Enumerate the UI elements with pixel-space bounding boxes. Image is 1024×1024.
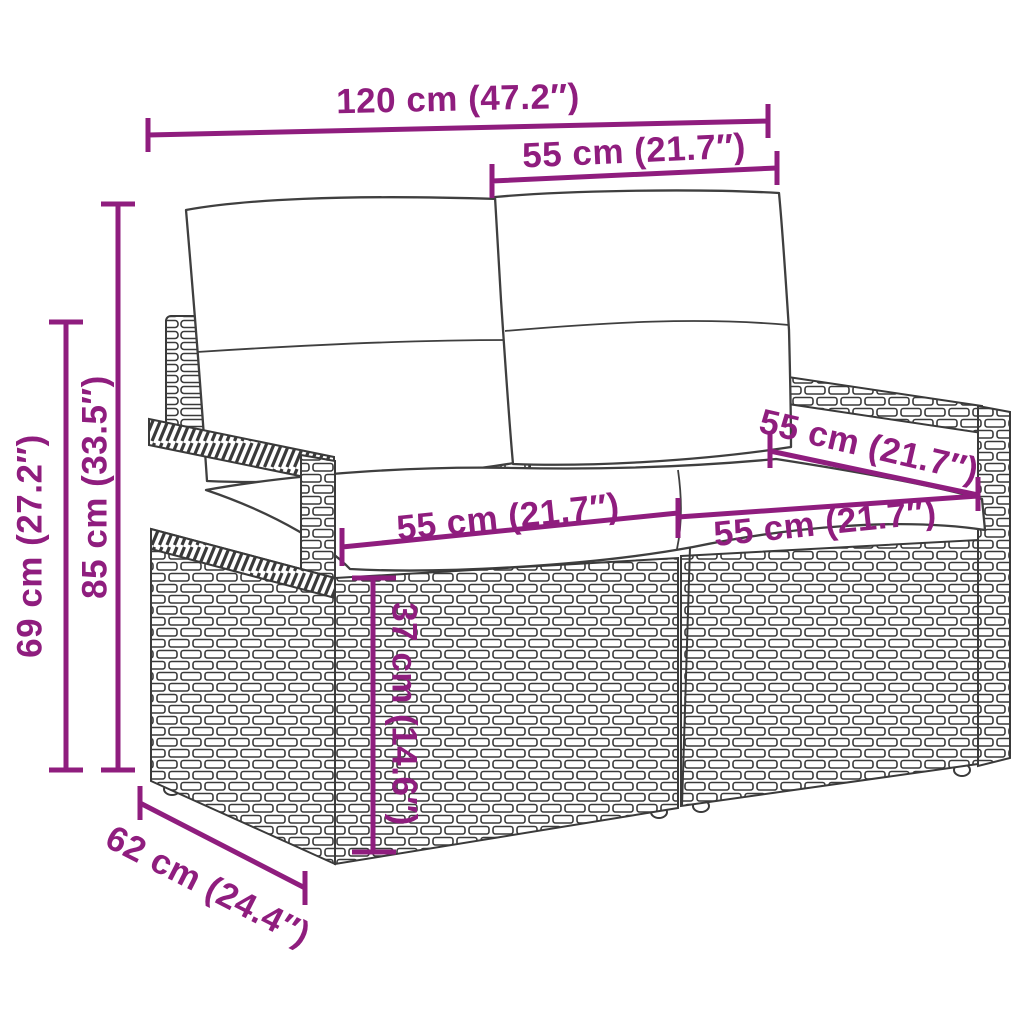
base-front-right-module: [681, 540, 978, 806]
dimension-diagram: 120 cm (47.2″) 55 cm (21.7″) 85 cm (33.5…: [0, 0, 1024, 1024]
back-cushions: [186, 190, 791, 482]
dim-upper-seat-width-label: 55 cm (21.7″): [521, 128, 746, 173]
dim-total-height-label: 85 cm (33.5″): [78, 375, 113, 599]
dim-overall-width-label: 120 cm (47.2″): [336, 79, 580, 120]
dim-arm-height-label: 69 cm (27.2″): [13, 434, 48, 658]
right-corner-post: [978, 406, 1010, 766]
dim-seat-height-label: 37 cm (14.6″): [387, 602, 422, 826]
base: [151, 529, 978, 864]
